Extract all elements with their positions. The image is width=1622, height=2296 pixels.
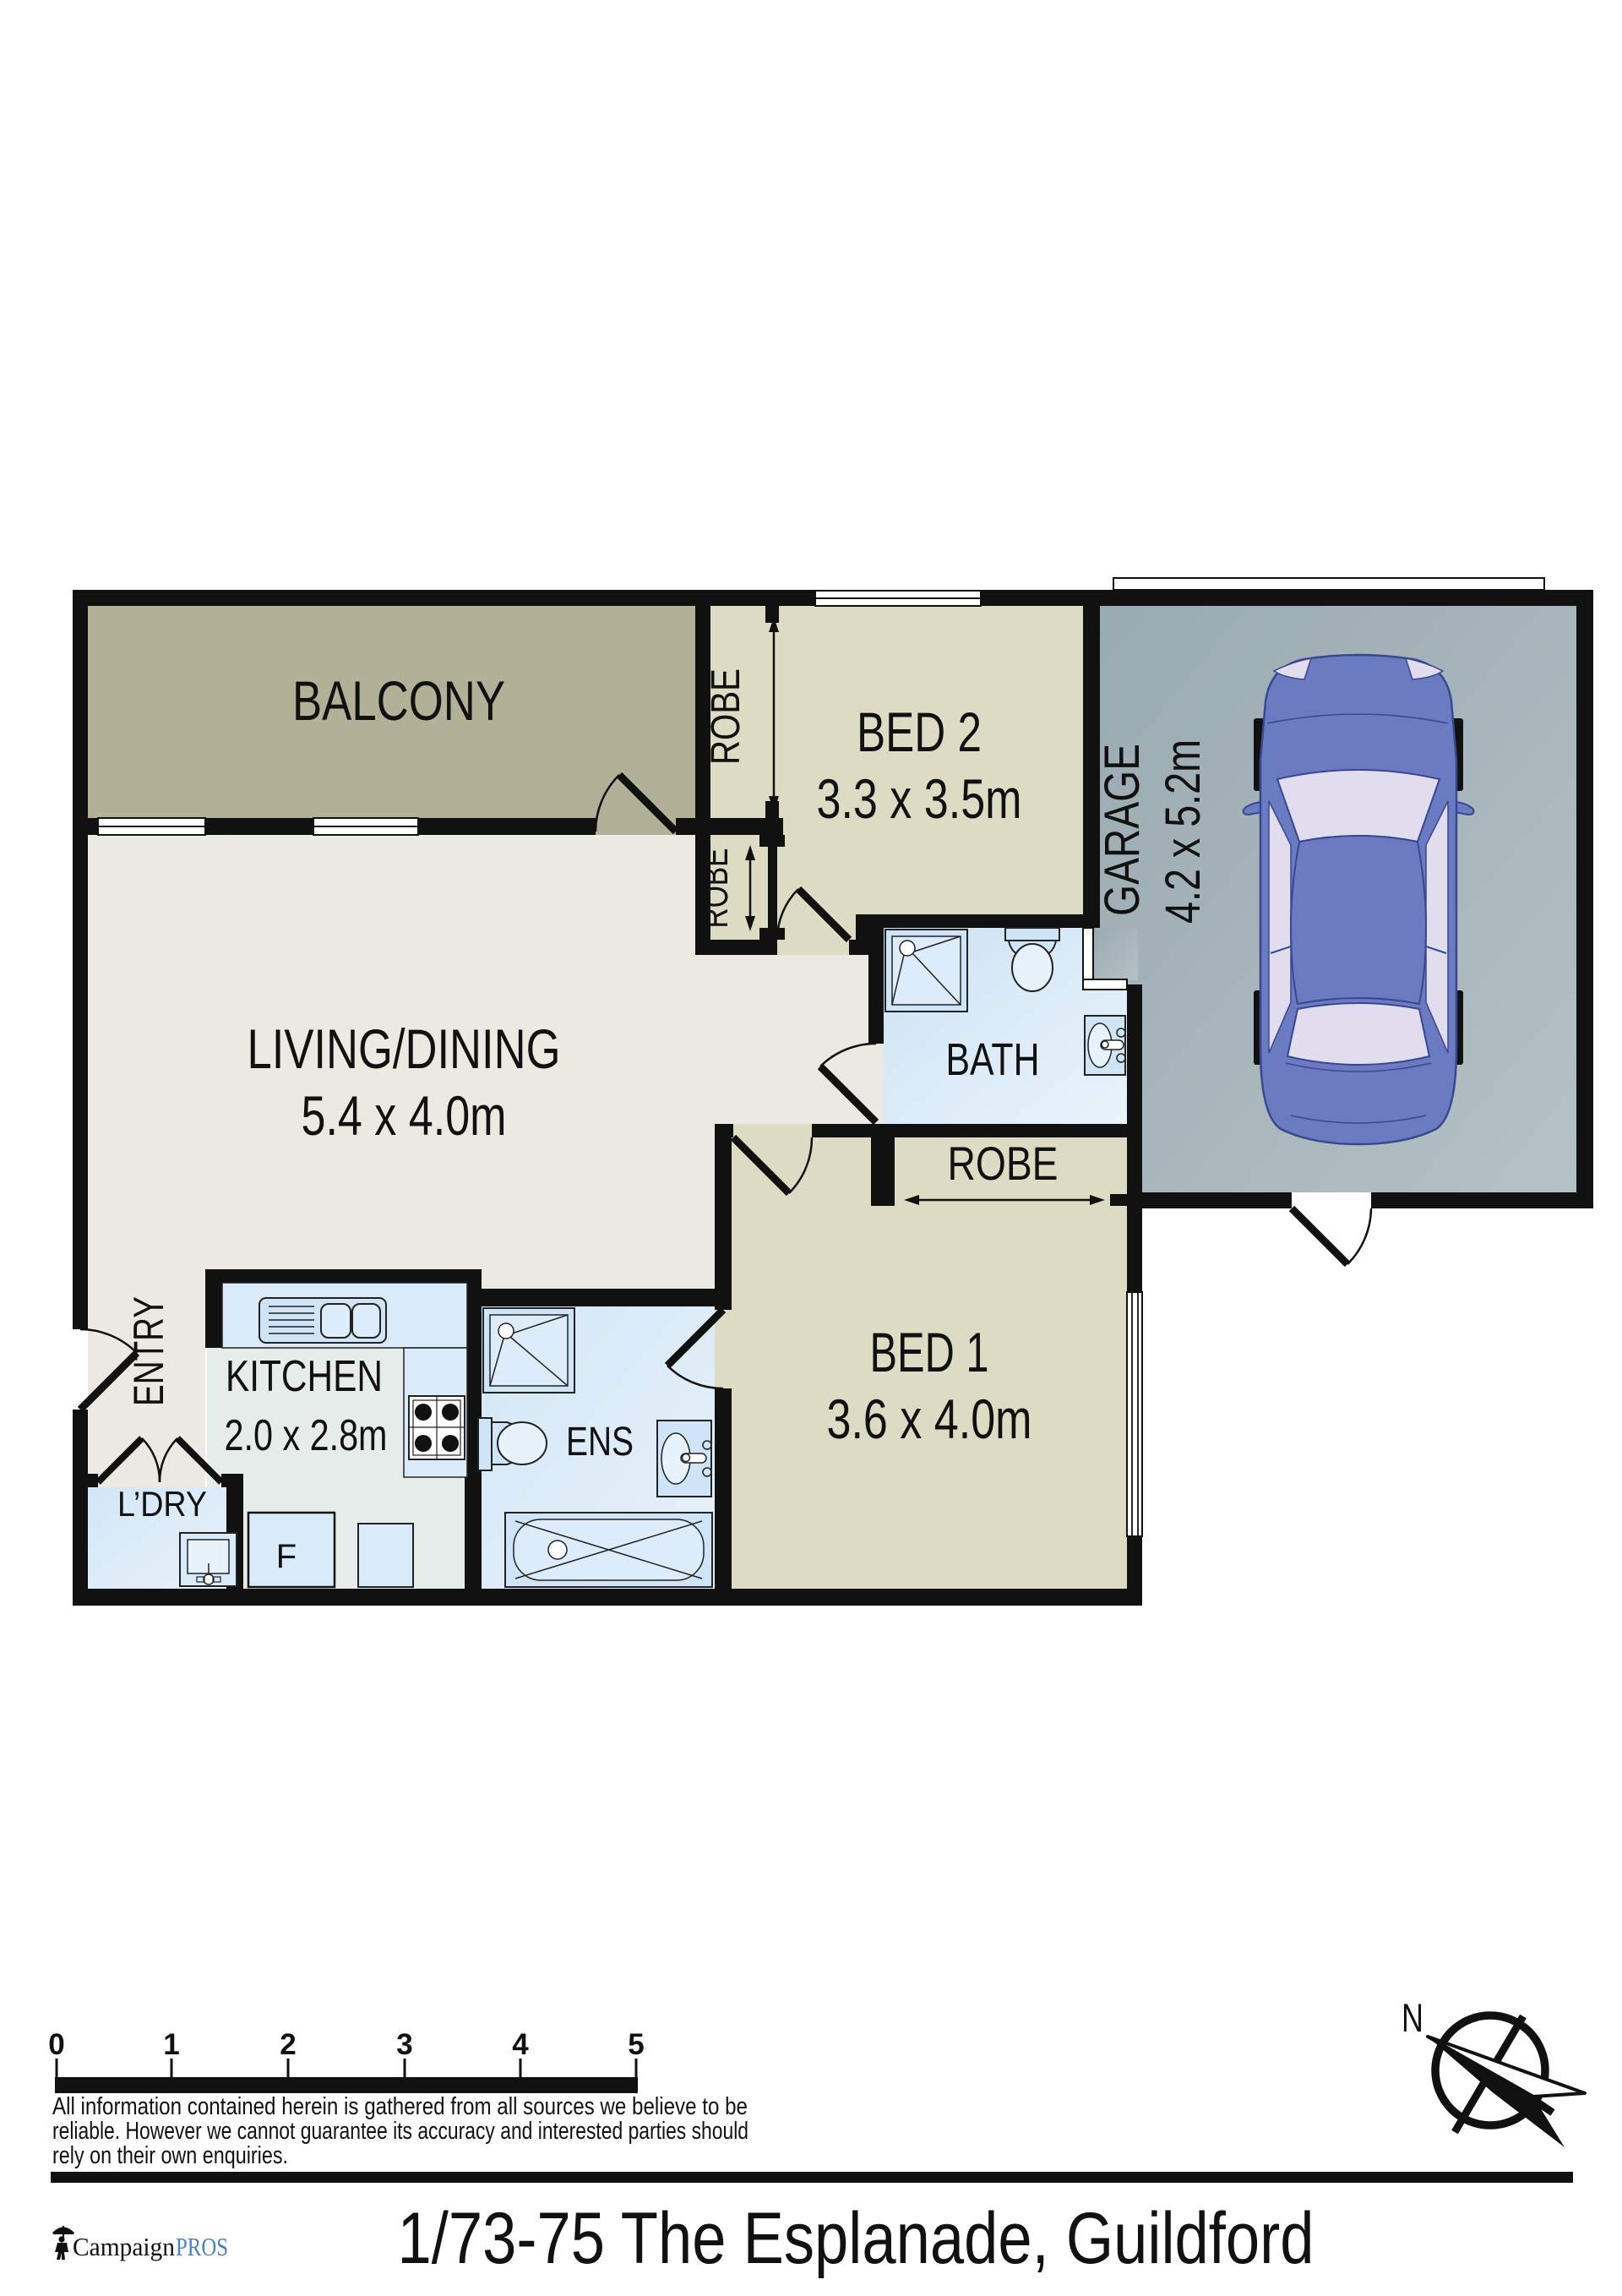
svg-text:1/73-75 The Esplanade, Guildfo: 1/73-75 The Esplanade, Guildford	[398, 2198, 1314, 2279]
svg-text:Campaign: Campaign	[73, 2232, 175, 2261]
svg-text:PROS: PROS	[176, 2232, 228, 2261]
svg-text:GARAGE: GARAGE	[1095, 744, 1150, 916]
svg-text:ENTRY: ENTRY	[125, 1296, 172, 1406]
svg-text:BALCONY: BALCONY	[292, 669, 505, 732]
svg-text:ROBE: ROBE	[948, 1137, 1059, 1190]
svg-text:BED 2: BED 2	[857, 701, 982, 763]
svg-text:3.6 x 4.0m: 3.6 x 4.0m	[827, 1388, 1032, 1450]
svg-text:BED 1: BED 1	[870, 1321, 989, 1383]
svg-text:rely on their own enquiries.: rely on their own enquiries.	[52, 2142, 288, 2169]
svg-text:L’DRY: L’DRY	[117, 1484, 207, 1524]
svg-text:N: N	[1402, 1995, 1423, 2040]
svg-text:2.0 x 2.8m: 2.0 x 2.8m	[225, 1411, 388, 1460]
svg-text:ROBE: ROBE	[704, 668, 748, 765]
svg-text:reliable. However we cannot gu: reliable. However we cannot guarantee it…	[52, 2118, 748, 2145]
svg-text:All information contained here: All information contained herein is gath…	[52, 2093, 748, 2120]
svg-text:5.4 x 4.0m: 5.4 x 4.0m	[302, 1084, 507, 1147]
svg-text:3: 3	[396, 2028, 412, 2061]
svg-text:3.3 x 3.5m: 3.3 x 3.5m	[817, 767, 1022, 830]
svg-text:4.2 x 5.2m: 4.2 x 5.2m	[1156, 739, 1211, 924]
svg-text:ROBE: ROBE	[694, 848, 736, 929]
svg-text:F: F	[276, 1538, 297, 1575]
svg-text:2: 2	[280, 2028, 296, 2061]
svg-text:LIVING/DINING: LIVING/DINING	[248, 1017, 561, 1080]
svg-text:4: 4	[512, 2028, 529, 2061]
svg-text:KITCHEN: KITCHEN	[226, 1352, 383, 1401]
svg-text:BATH: BATH	[946, 1034, 1040, 1085]
svg-text:5: 5	[628, 2028, 644, 2061]
svg-text:ENS: ENS	[566, 1420, 634, 1464]
svg-text:1: 1	[163, 2028, 179, 2061]
svg-text:0: 0	[48, 2028, 64, 2061]
